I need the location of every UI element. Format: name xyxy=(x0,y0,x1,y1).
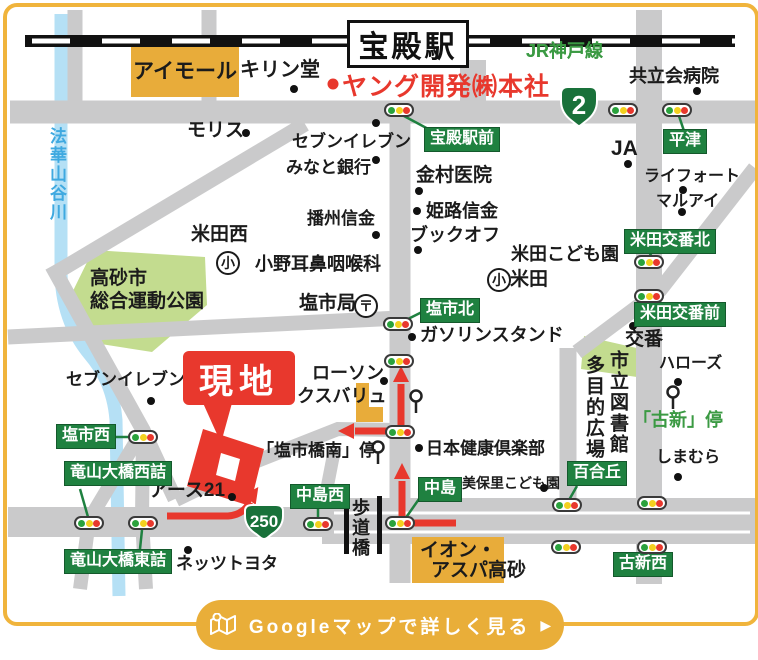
vertical-label: 法華山谷川 xyxy=(48,127,65,222)
signal-name-box: 百合丘 xyxy=(567,461,627,486)
sports-park-label: 高砂市 総合運動公園 xyxy=(90,268,204,314)
poi-label: モリス xyxy=(187,121,244,142)
poi-label: ネッツトヨタ xyxy=(176,555,278,574)
poi-label: セブンイレブン xyxy=(292,133,411,152)
ion-aspa-line2: アスパ高砂 xyxy=(431,561,526,582)
signal-lamp-r xyxy=(403,107,410,114)
signal-lamp-g xyxy=(555,544,562,551)
poi-label: 播州信金 xyxy=(307,210,375,229)
signal-lamp-r xyxy=(656,500,663,507)
poi-label: ハローズ xyxy=(659,355,722,373)
poi-label: 交番 xyxy=(625,330,663,351)
poi-label: JA xyxy=(611,137,638,160)
sports-park-line1: 高砂市 xyxy=(90,268,204,291)
signal-name-box: 塩市西 xyxy=(56,424,116,449)
signal-hoden-ekimae xyxy=(384,103,414,117)
poi-dot xyxy=(372,119,380,127)
signal-lamp-g xyxy=(638,293,645,300)
vertical-label: 歩道橋 xyxy=(351,498,369,558)
station-box: 宝殿駅 xyxy=(347,20,469,68)
poi-dot xyxy=(184,546,192,554)
signal-lamp-r xyxy=(404,520,411,527)
signal-lamp-g xyxy=(641,544,648,551)
signal-wide-road-east xyxy=(637,496,667,510)
signal-lamp-r xyxy=(404,429,411,436)
poi-dot xyxy=(380,377,388,385)
bus-stop-icon xyxy=(411,391,422,414)
signal-yoneda-koban-kita xyxy=(634,255,664,269)
signal-name-box: 竜山大橋西詰 xyxy=(64,461,172,486)
signal-south-center xyxy=(551,540,581,554)
signal-lamp-g xyxy=(307,521,314,528)
signal-lamp-y xyxy=(315,521,322,528)
road-diagonal-nw xyxy=(57,124,305,272)
poi-label: キリン堂 xyxy=(240,59,320,81)
poi-label: セブンイレブン xyxy=(66,371,185,390)
signal-lamp-r xyxy=(147,520,154,527)
poi-label: 米田西 xyxy=(191,225,248,246)
poi-dot xyxy=(414,246,422,254)
signal-koshin-nishi xyxy=(637,540,667,554)
poi-label: 日本健康倶楽部 xyxy=(426,440,545,459)
poi-label: 米田 xyxy=(510,270,548,291)
signal-lamp-y xyxy=(674,107,681,114)
signal-lamp-y xyxy=(140,434,147,441)
poi-dot xyxy=(693,87,701,95)
sports-park-line2: 総合運動公園 xyxy=(90,291,204,314)
poi-label: ガソリンスタンド xyxy=(420,326,564,346)
signal-lamp-r xyxy=(653,259,660,266)
signal-lamp-y xyxy=(396,358,403,365)
signal-tatsuyama-nishizume xyxy=(74,516,104,530)
poi-dot xyxy=(415,444,423,452)
signal-lamp-g xyxy=(612,107,619,114)
poi-label: 共立会病院 xyxy=(629,67,719,87)
signal-lamp-g xyxy=(556,502,563,509)
signal-lamp-y xyxy=(140,520,147,527)
signal-lamp-r xyxy=(570,544,577,551)
signal-lamp-g xyxy=(389,429,396,436)
poi-label: 米田こども園 xyxy=(511,245,619,265)
signal-lamp-g xyxy=(78,520,85,527)
poi-dot xyxy=(228,493,236,501)
ion-aspa-line1: イオン・ xyxy=(420,541,496,562)
signal-nakajima xyxy=(385,516,415,530)
poi-dot xyxy=(408,333,416,341)
access-map: 2 250 宝殿駅 JR神戸線 ヤング開発㈱本社 アイモール イオン・ アスパ高… xyxy=(0,0,758,660)
signal-shioichi-kita xyxy=(383,317,413,331)
poi-label: 小野耳鼻咽喉科 xyxy=(255,255,381,275)
route-250-number: 250 xyxy=(250,512,278,531)
signal-name-box: 中島 xyxy=(418,477,462,502)
green-text-label: 「古新」停 xyxy=(633,411,723,431)
poi-label: ライフォート xyxy=(644,168,740,186)
signal-name-box: 竜山大橋東詰 xyxy=(64,549,172,574)
poi-dot xyxy=(413,207,421,215)
poi-dot xyxy=(372,156,380,164)
poi-label: マルアイ xyxy=(656,193,719,211)
signal-lamp-r xyxy=(93,520,100,527)
poi-label: 「塩市橋南」停 xyxy=(257,442,376,461)
play-arrow-icon: ▶ xyxy=(540,617,551,634)
signal-shioichibashi-minami xyxy=(385,425,415,439)
signal-lamp-y xyxy=(564,502,571,509)
poi-label: ローソン xyxy=(312,364,384,384)
circled-char: 小 xyxy=(216,251,240,275)
signal-tatsuyama-higashizume xyxy=(128,516,158,530)
signal-lamp-g xyxy=(638,259,645,266)
signal-shioichi-nishi xyxy=(128,430,158,444)
company-label: ヤング開発㈱本社 xyxy=(342,67,550,103)
aimall-box: アイモール xyxy=(131,47,239,97)
circled-char: 小 xyxy=(487,268,511,292)
signal-lamp-r xyxy=(403,358,410,365)
signal-name-box: 平津 xyxy=(663,129,707,154)
google-maps-button[interactable]: Googleマップで詳しく見る ▶ xyxy=(196,600,564,650)
signal-lamp-y xyxy=(649,500,656,507)
signal-lamp-r xyxy=(147,434,154,441)
signal-lamp-g xyxy=(387,321,394,328)
poi-dot xyxy=(674,473,682,481)
signal-lamp-y xyxy=(396,107,403,114)
signal-name-box: 中島西 xyxy=(290,484,350,509)
signal-lamp-g xyxy=(388,358,395,365)
signal-name-box: 塩市北 xyxy=(420,298,480,323)
signal-lamp-y xyxy=(86,520,93,527)
poi-label: みなと銀行 xyxy=(286,159,371,178)
signal-lamp-r xyxy=(322,521,329,528)
signal-name-box: 米田交番北 xyxy=(624,229,716,254)
signal-lamp-y xyxy=(649,544,656,551)
signal-lamp-r xyxy=(656,544,663,551)
google-maps-button-label: Googleマップで詳しく見る xyxy=(249,612,530,639)
signal-lamp-y xyxy=(397,429,404,436)
signal-name-box: 米田交番前 xyxy=(634,302,726,327)
company-dot xyxy=(328,79,339,90)
signal-lamp-y xyxy=(646,259,653,266)
poi-dot xyxy=(540,484,548,492)
signal-lamp-y xyxy=(646,293,653,300)
poi-dot xyxy=(678,208,686,216)
signal-lamp-g xyxy=(132,434,139,441)
signal-lamp-y xyxy=(620,107,627,114)
site-marker: 現地 xyxy=(183,351,295,405)
signal-lamp-g xyxy=(132,520,139,527)
poi-dot xyxy=(147,397,155,405)
signal-lamp-y xyxy=(395,321,402,328)
route-2-number: 2 xyxy=(572,90,586,120)
poi-dot xyxy=(674,378,682,386)
poi-label: ブックオフ xyxy=(410,226,500,246)
poi-dot xyxy=(624,160,632,168)
signal-lamp-g xyxy=(388,107,395,114)
poi-label: 塩市局 xyxy=(299,294,356,315)
signal-lamp-g xyxy=(666,107,673,114)
signal-lamp-r xyxy=(627,107,634,114)
vertical-label: 多目的広場 xyxy=(584,355,603,460)
poi-label: 金村医院 xyxy=(416,166,492,187)
poi-dot xyxy=(415,187,423,195)
signal-lamp-r xyxy=(402,321,409,328)
signal-lamp-y xyxy=(397,520,404,527)
map-icon xyxy=(209,613,239,637)
bus-stop-icon xyxy=(668,387,679,410)
aimall-label: アイモール xyxy=(133,60,237,83)
poi-dot xyxy=(372,231,380,239)
signal-lamp-g xyxy=(641,500,648,507)
signal-lamp-r xyxy=(681,107,688,114)
circled-char: 〒 xyxy=(354,294,378,318)
signal-lamp-g xyxy=(389,520,396,527)
poi-label: 姫路信金 xyxy=(426,202,498,222)
signal-nakajima-nishi xyxy=(303,517,333,531)
poi-dot xyxy=(290,85,298,93)
signal-lamp-y xyxy=(563,544,570,551)
poi-dot xyxy=(242,129,250,137)
signal-lamp-r xyxy=(571,502,578,509)
signal-name-box: 宝殿駅前 xyxy=(424,127,500,152)
signal-name-box: 古新西 xyxy=(613,552,673,577)
signal-yoneda-koban-mae xyxy=(634,289,664,303)
signal-r2-east xyxy=(608,103,638,117)
vertical-label: 市立図書館 xyxy=(608,350,627,455)
signal-hiratsu xyxy=(662,103,692,117)
signal-lamp-r xyxy=(653,293,660,300)
signal-yurigaoka xyxy=(552,498,582,512)
signal-lawson-corner xyxy=(384,354,414,368)
poi-label: しまむら xyxy=(656,449,720,467)
green-text-label: JR神戸線 xyxy=(526,42,603,62)
